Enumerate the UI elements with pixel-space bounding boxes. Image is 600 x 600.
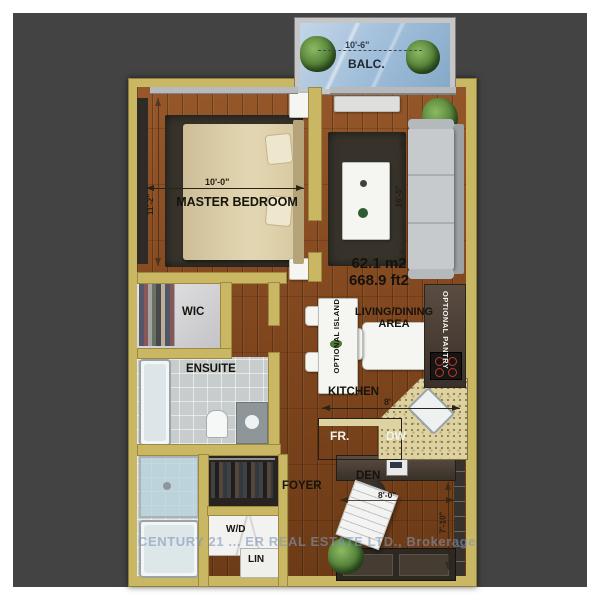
master-dim-line-v bbox=[158, 98, 159, 266]
wall-ensuite-right bbox=[268, 352, 280, 448]
fridge-label: FR. bbox=[330, 430, 349, 443]
wall-wic-right bbox=[220, 282, 232, 352]
burner bbox=[448, 368, 457, 377]
bed-headboard bbox=[293, 120, 304, 264]
wall-hall-upper bbox=[268, 282, 280, 326]
wall-bath2-right bbox=[198, 454, 209, 587]
den-label: DEN bbox=[356, 470, 380, 483]
foyer-label: FOYER bbox=[282, 480, 322, 493]
master-window bbox=[150, 87, 298, 94]
shower-drain bbox=[163, 482, 171, 490]
den-dim-line-v bbox=[448, 482, 449, 570]
wic-clothes bbox=[139, 284, 175, 346]
wall-master-bottom bbox=[137, 272, 287, 284]
master-dim-depth: 11'-2" bbox=[146, 194, 155, 215]
media-console bbox=[334, 96, 400, 112]
floorplan-canvas: 10'-6" BALC. 10'-0" 11'-2" MASTER BEDROO… bbox=[0, 0, 600, 600]
unit-area: 62.1 m2 668.9 ft2 bbox=[320, 256, 438, 289]
ensuite-label: ENSUITE bbox=[186, 363, 236, 376]
wall-master-living bbox=[308, 87, 322, 221]
master-curtain bbox=[137, 98, 148, 264]
balcony-dim: 10'-6" bbox=[345, 40, 369, 50]
wic-label: WIC bbox=[182, 306, 204, 319]
table-plant-decor bbox=[358, 208, 368, 218]
wall-wic-bottom bbox=[137, 348, 232, 359]
kitchen-dim-width: 8' bbox=[384, 397, 391, 407]
kitchen-dim-line bbox=[322, 408, 460, 409]
laptop bbox=[386, 459, 408, 476]
closet-rail bbox=[209, 458, 275, 460]
ensuite-tub bbox=[139, 359, 171, 446]
coffee-table bbox=[342, 162, 390, 240]
bed-pillow bbox=[265, 133, 294, 166]
balcony-plant-right bbox=[406, 40, 440, 74]
dishwasher-label: DW bbox=[386, 430, 406, 443]
cabinet-door bbox=[399, 554, 449, 576]
master-dim-width: 10'-0" bbox=[205, 177, 229, 187]
den-dim-width: 8'-0" bbox=[378, 490, 396, 500]
master-dim-line bbox=[146, 188, 304, 189]
sofa bbox=[408, 128, 454, 270]
vanity-basin bbox=[245, 415, 259, 429]
living-window bbox=[330, 87, 456, 94]
sofa-arm bbox=[408, 119, 454, 129]
brokerage-watermark: CENTURY 21 ... ER REAL ESTATE LTD., Brok… bbox=[138, 534, 468, 549]
second-tub bbox=[139, 520, 199, 578]
hall-closet bbox=[207, 454, 278, 506]
master-bedroom-label: MASTER BEDROOM bbox=[174, 196, 300, 210]
closet-clothes bbox=[211, 462, 273, 498]
den-dim-line bbox=[340, 500, 454, 501]
living-dining-label: LIVING/DINING AREA bbox=[338, 306, 450, 330]
laptop-screen bbox=[390, 462, 402, 468]
wall-foyer-left bbox=[278, 454, 288, 587]
wall-ensuite-bottom bbox=[137, 444, 281, 456]
toilet bbox=[206, 410, 228, 438]
den-dim-depth: 7'-10" bbox=[438, 512, 447, 534]
balcony-plant-left bbox=[300, 36, 336, 72]
kitchen-label: KITCHEN bbox=[328, 386, 379, 399]
ensuite-vanity bbox=[236, 402, 268, 444]
balcony-dim-line bbox=[318, 50, 422, 51]
living-dim-depth: 16'-5" bbox=[394, 186, 403, 208]
balcony-label: BALC. bbox=[348, 58, 385, 71]
shower bbox=[139, 456, 199, 518]
unit-area-m2: 62.1 m2 bbox=[320, 256, 438, 273]
linen-label: LIN bbox=[248, 554, 264, 565]
unit-area-ft2: 668.9 ft2 bbox=[320, 273, 438, 290]
wall-wd-top bbox=[207, 506, 282, 516]
tub-basin bbox=[144, 364, 166, 441]
table-decor bbox=[360, 180, 367, 187]
tub-basin bbox=[144, 525, 194, 573]
